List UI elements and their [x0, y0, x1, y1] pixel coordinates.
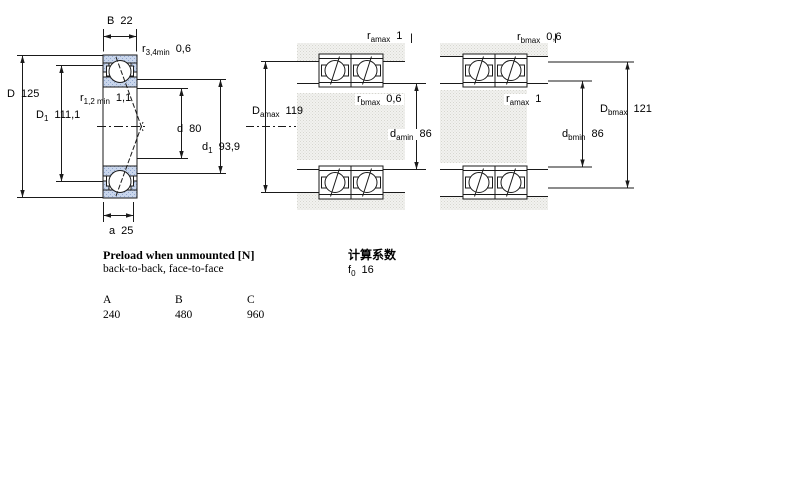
ball-bottom: [109, 171, 131, 193]
preload-col-a-header: A: [103, 295, 111, 307]
preload-value-b: 480: [175, 310, 192, 322]
dim-label-r-amax: ramax1: [367, 31, 402, 42]
preload-subtitle: back-to-back, face-to-face: [103, 264, 224, 276]
f0-factor: f016: [348, 265, 374, 276]
dim-label-d-amin: damin86: [388, 129, 434, 140]
preload-value-c: 960: [247, 310, 264, 322]
dim-label-d-bmin: dbmin86: [562, 129, 604, 140]
bearing-datasheet-figure: B22 r3,4min0,6 D125 r1,2 min1,1 D1111,1 …: [0, 0, 800, 500]
dim-label-d: d80: [177, 124, 201, 135]
ball-top: [109, 61, 131, 83]
dim-label-r34min: r3,4min0,6: [142, 44, 191, 55]
dim-label-a: a25: [109, 226, 133, 237]
preload-value-a: 240: [103, 310, 120, 322]
dim-label-d1: d193,9: [202, 142, 240, 153]
dim-label-D1: D1111,1: [36, 110, 80, 121]
dim-label-D-amax: Damax119: [252, 106, 303, 117]
pair-arrangement-drawing-a: [246, 34, 426, 211]
preload-col-b-header: B: [175, 295, 183, 307]
dim-label-D: D125: [7, 89, 39, 100]
preload-col-c-header: C: [247, 295, 255, 307]
dim-label-r12min: r1,2 min1,1: [80, 93, 131, 104]
dim-label-r-amax-2: ramax1: [504, 94, 543, 105]
dim-label-D-bmax: Dbmax121: [600, 104, 652, 115]
dim-label-B: B22: [107, 16, 133, 27]
preload-title: Preload when unmounted [N]: [103, 249, 254, 261]
dim-label-r-bmax: rbmax0,6: [355, 94, 404, 105]
dim-label-r-bmax-2: rbmax0,6: [517, 32, 562, 43]
calc-factors-title: 计算系数: [348, 249, 396, 261]
pair-arrangement-drawing-b: [440, 34, 634, 211]
